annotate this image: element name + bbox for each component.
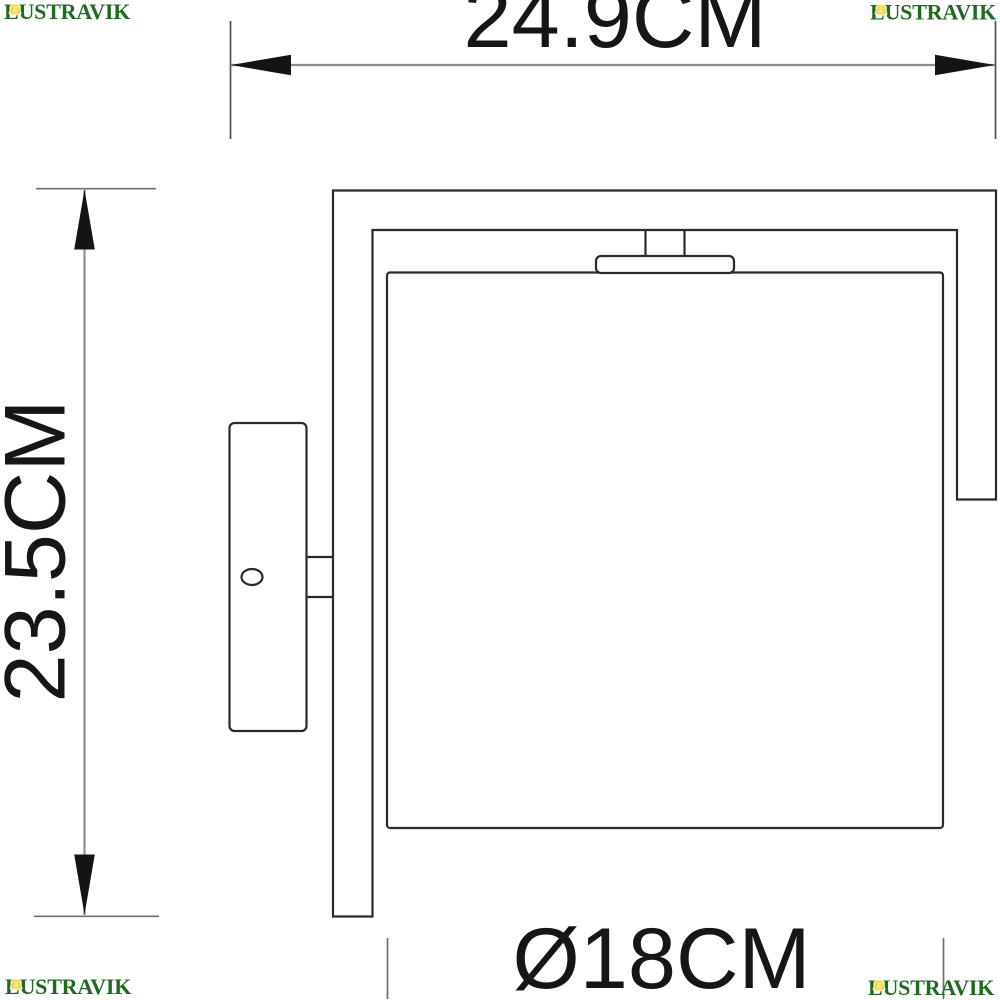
svg-text:23.5CM: 23.5CM: [0, 400, 84, 703]
svg-text:LUSTRAVIK: LUSTRAVIK: [868, 975, 994, 1000]
svg-text:LUSTRAVIK: LUSTRAVIK: [870, 0, 996, 25]
svg-text:LUSTRAVIK: LUSTRAVIK: [5, 974, 131, 999]
svg-text:24.9CM: 24.9CM: [464, 0, 767, 66]
svg-text:Ø18CM: Ø18CM: [512, 911, 810, 1000]
svg-text:LUSTRAVIK: LUSTRAVIK: [4, 0, 130, 24]
